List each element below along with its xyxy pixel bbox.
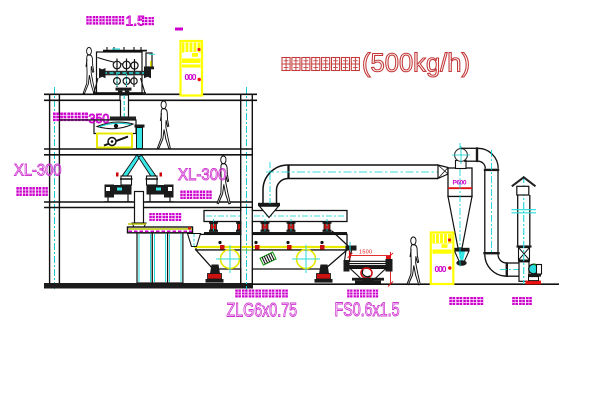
svg-text:1500: 1500 bbox=[359, 250, 372, 256]
svg-text:FS0.6x1.5: FS0.6x1.5 bbox=[335, 300, 400, 321]
svg-text:(500kg/h): (500kg/h) bbox=[362, 48, 470, 78]
svg-text:ZLG6x0.75: ZLG6x0.75 bbox=[227, 301, 298, 322]
svg-text:000: 000 bbox=[435, 264, 447, 274]
svg-text:XL-300: XL-300 bbox=[14, 162, 62, 180]
svg-text:000: 000 bbox=[185, 72, 197, 82]
svg-text:XL-300: XL-300 bbox=[178, 166, 227, 184]
svg-text:350: 350 bbox=[89, 112, 110, 126]
